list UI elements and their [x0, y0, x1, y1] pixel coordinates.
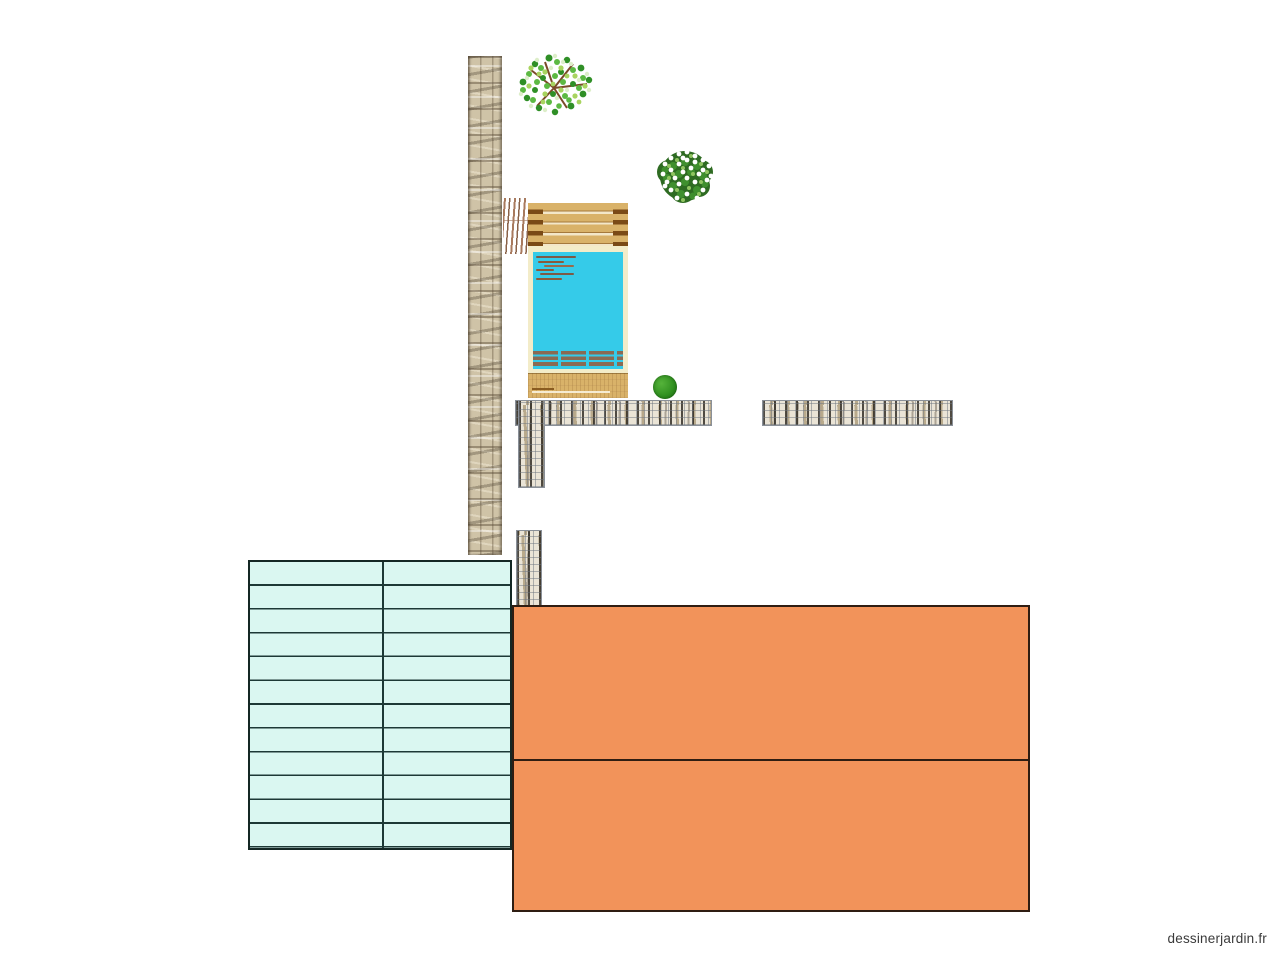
pool-steps-grate — [533, 351, 623, 367]
deck-top[interactable] — [528, 203, 628, 246]
gabion-wall-right[interactable] — [762, 400, 953, 426]
reed-screen[interactable] — [503, 198, 528, 254]
deck-plank-ends-left — [528, 203, 543, 246]
gabion-wall-vertical-upper[interactable] — [518, 400, 545, 488]
flowering-shrub-icon[interactable] — [653, 146, 717, 206]
boxwood-ball-icon[interactable] — [653, 375, 677, 399]
pool[interactable] — [528, 246, 628, 373]
orange-terrace-lower[interactable] — [512, 759, 1030, 912]
driftwood-marks — [536, 256, 582, 282]
deck-plank-dash — [532, 388, 554, 390]
stone-wall[interactable] — [468, 56, 502, 555]
shrub-foliage — [653, 146, 717, 206]
deck-bottom[interactable] — [528, 373, 628, 398]
orange-terrace-upper[interactable] — [512, 605, 1030, 760]
garden-plan-canvas: dessinerjardin.fr — [0, 0, 1280, 960]
plank-terrace-grid[interactable] — [248, 560, 512, 850]
deck-plank-line — [532, 391, 610, 393]
gabion-wall-vertical-lower[interactable] — [516, 530, 542, 608]
tree-foliage — [509, 50, 599, 124]
deck-plank-ends-right — [613, 203, 628, 246]
watermark: dessinerjardin.fr — [1168, 931, 1267, 946]
tree-icon[interactable] — [509, 50, 599, 124]
pool-water — [533, 252, 623, 369]
